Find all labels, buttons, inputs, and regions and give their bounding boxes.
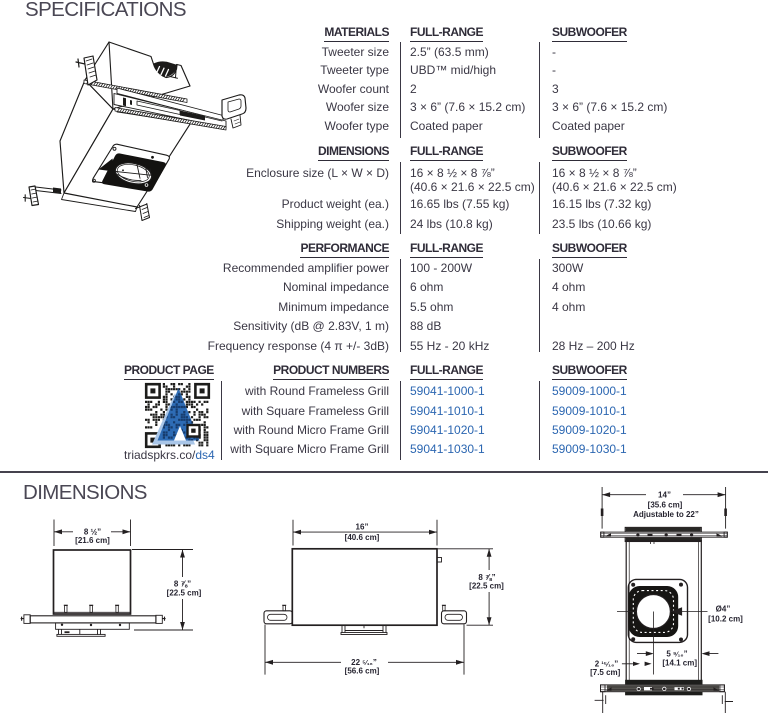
svg-text:8 ⅞”: 8 ⅞”: [174, 580, 191, 589]
svg-text:14”: 14”: [658, 491, 671, 500]
svg-text:16”: 16”: [356, 522, 369, 531]
svg-text:[35.6 cm]: [35.6 cm]: [648, 500, 683, 509]
svg-text:[7.5 cm]: [7.5 cm]: [590, 668, 621, 677]
svg-text:8 ⅞”: 8 ⅞”: [478, 573, 495, 582]
svg-text:Ø4”: Ø4”: [716, 604, 731, 613]
svg-text:[40.6 cm]: [40.6 cm]: [345, 533, 380, 542]
svg-text:[14.1 cm]: [14.1 cm]: [662, 659, 697, 668]
svg-text:Adjustable to 22”: Adjustable to 22”: [633, 510, 699, 519]
svg-text:8 ½”: 8 ½”: [84, 527, 101, 536]
svg-text:[56.6 cm]: [56.6 cm]: [345, 667, 380, 676]
svg-text:[22.5 cm]: [22.5 cm]: [469, 582, 504, 591]
svg-text:22 ⁵⁄₁₆”: 22 ⁵⁄₁₆”: [351, 658, 377, 667]
svg-text:[22.5 cm]: [22.5 cm]: [167, 589, 202, 598]
svg-text:[10.2 cm]: [10.2 cm]: [708, 615, 743, 624]
svg-text:5 ⁹⁄₁₆”: 5 ⁹⁄₁₆”: [666, 649, 687, 658]
svg-text:[21.6 cm]: [21.6 cm]: [75, 536, 110, 545]
